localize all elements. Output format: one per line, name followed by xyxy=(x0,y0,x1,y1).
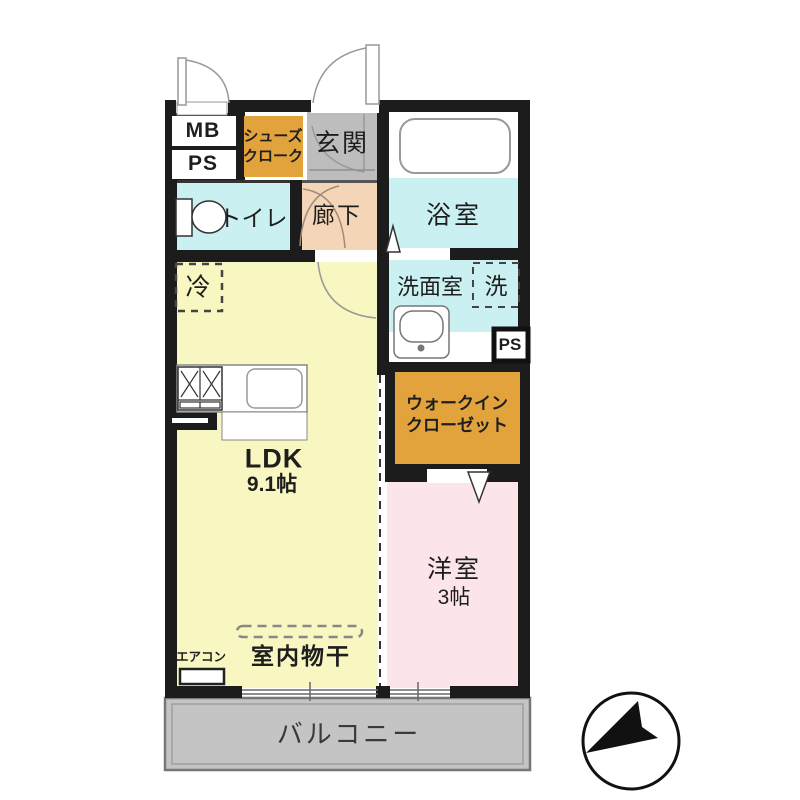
wall-bath-washroom xyxy=(450,248,518,260)
wall-center-vertical xyxy=(377,100,389,375)
walkin-line2: クローゼット xyxy=(406,415,508,437)
aircon-label: エアコン xyxy=(176,650,226,664)
wall-bottom-post xyxy=(376,686,390,698)
ldk-size-label: 9.1帖 xyxy=(247,473,297,497)
mb-label: MB xyxy=(186,119,221,143)
bathroom-label: 浴室 xyxy=(426,202,482,231)
entry-door xyxy=(313,45,379,104)
fridge-label: 冷 xyxy=(185,274,210,303)
wall-bottom-left xyxy=(165,686,242,698)
toilet-label: トイレ xyxy=(219,205,288,231)
balcony-label: バルコニー xyxy=(277,720,421,750)
entrance-label: 玄関 xyxy=(315,130,369,159)
aircon-box xyxy=(180,669,224,684)
wall-left xyxy=(165,100,177,698)
mb-door xyxy=(178,58,229,105)
wall-under-toilet xyxy=(165,250,315,262)
ldk-door-opening xyxy=(315,250,377,262)
bedroom-label: 洋室 xyxy=(427,556,481,585)
bathtub-icon xyxy=(400,119,510,173)
north-arrow-icon xyxy=(583,693,679,789)
ps-small-label: PS xyxy=(499,335,522,355)
wall-bottom-right xyxy=(450,686,530,698)
wall-toilet-top-line xyxy=(177,180,290,183)
shoe-closet-line2: クローク xyxy=(243,147,303,167)
kitchen-sink-icon xyxy=(247,369,302,408)
stove-icon xyxy=(178,367,222,410)
wall-bedroom-top-left xyxy=(385,470,427,482)
wall-bedroom-top-right xyxy=(487,470,530,482)
floor-plan: MB PS シューズクローク 玄関 浴室 トイレ 廊下 洗面室 洗 PS ウォー… xyxy=(0,0,800,800)
floor-plan-drawing xyxy=(0,0,800,800)
washer-label: 洗 xyxy=(485,273,508,299)
hallway-label: 廊下 xyxy=(312,202,362,228)
ps-label: PS xyxy=(188,152,218,176)
walkin-closet-label: ウォークインクローゼット xyxy=(406,393,508,437)
wall-hall-top-line xyxy=(302,180,377,183)
bedroom-size-label: 3帖 xyxy=(438,586,471,610)
kitchen-stub-slit xyxy=(172,418,208,423)
ldk-label: LDK xyxy=(245,443,304,474)
indoor-drying-label: 室内物干 xyxy=(251,643,351,669)
washroom-label: 洗面室 xyxy=(397,274,463,299)
shoe-closet-line1: シューズ xyxy=(243,127,303,147)
shoe-closet-label: シューズクローク xyxy=(243,127,303,168)
walkin-line1: ウォークイン xyxy=(406,393,508,415)
sink-icon xyxy=(394,306,449,358)
